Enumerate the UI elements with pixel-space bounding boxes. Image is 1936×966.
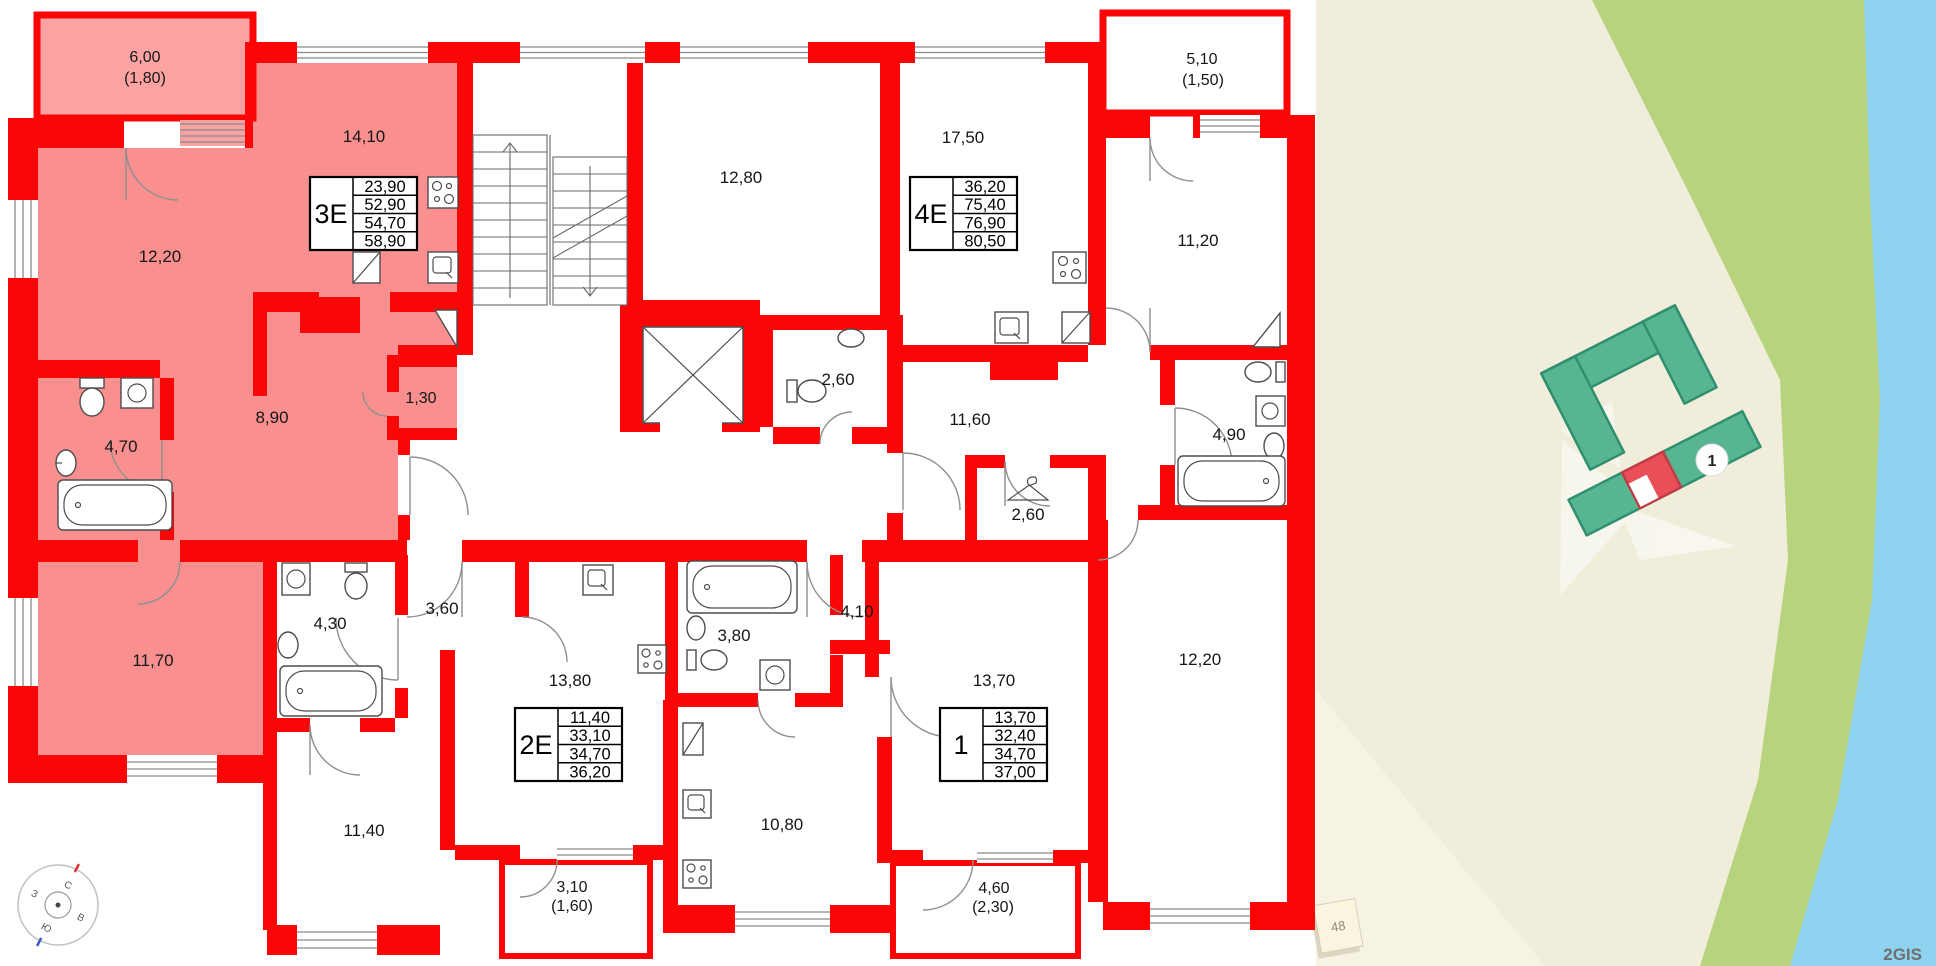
room-label: (2,30) bbox=[972, 899, 1014, 916]
room-label: 12,80 bbox=[720, 168, 763, 187]
apartment-table-2e: 2Е 11,40 33,10 34,70 36,20 bbox=[515, 708, 622, 782]
room-label: 3,60 bbox=[425, 599, 458, 618]
apartment-area: 33,10 bbox=[569, 727, 610, 745]
house-number-label: 48 bbox=[1330, 918, 1347, 935]
kitchen-sink-icon bbox=[428, 252, 458, 283]
kitchen-sink-icon bbox=[683, 790, 711, 818]
room-label: 14,10 bbox=[343, 127, 386, 146]
window bbox=[297, 42, 428, 63]
watermark-2gis: 2GIS bbox=[1883, 945, 1922, 964]
apartment-table-4e: 4Е 36,20 75,40 76,90 80,50 bbox=[910, 177, 1017, 251]
room-label: (1,80) bbox=[124, 70, 166, 87]
fridge-icon bbox=[1062, 312, 1090, 343]
apartment-type-label: 3Е bbox=[314, 199, 347, 229]
balcony-6-00 bbox=[37, 15, 253, 118]
floor-plan: 6,00 (1,80) 12,20 14,10 4,70 8,90 1,30 1… bbox=[1, 13, 1315, 964]
room-label: 4,70 bbox=[104, 437, 137, 456]
window bbox=[1150, 902, 1250, 930]
map-house-48: 48 bbox=[1309, 899, 1364, 959]
window bbox=[915, 42, 1045, 63]
apartment-area: 36,20 bbox=[569, 764, 610, 782]
stove-icon bbox=[683, 860, 711, 888]
compass: С В Ю З bbox=[1, 846, 114, 964]
washing-machine-icon bbox=[1256, 396, 1285, 426]
kitchen-sink-icon bbox=[995, 312, 1028, 343]
building-badge-label: 1 bbox=[1708, 453, 1717, 470]
window-sill bbox=[557, 845, 633, 860]
elevator bbox=[643, 327, 743, 434]
room-label: 4,90 bbox=[1212, 425, 1245, 444]
window bbox=[8, 200, 38, 278]
room-label: 11,60 bbox=[949, 410, 990, 429]
apartment-type-label: 1 bbox=[953, 730, 968, 760]
room-label: 11,40 bbox=[343, 821, 384, 840]
vent-shaft bbox=[683, 723, 703, 755]
room-label: 2,60 bbox=[821, 370, 854, 389]
apartment-table-3e: 3Е 23,90 52,90 54,70 58,90 bbox=[310, 177, 417, 251]
room-label: (1,60) bbox=[551, 898, 593, 915]
room-label: 8,90 bbox=[255, 408, 288, 427]
apartment-area: 58,90 bbox=[364, 233, 405, 251]
sink-icon bbox=[1264, 433, 1284, 459]
apartment-area: 36,20 bbox=[964, 178, 1005, 196]
apartment-area: 52,90 bbox=[364, 196, 405, 214]
bathtub-icon bbox=[1178, 456, 1285, 506]
sink-icon bbox=[838, 329, 864, 347]
apartment-area: 23,90 bbox=[364, 178, 405, 196]
room-label: 3,80 bbox=[717, 626, 750, 645]
toilet-icon bbox=[687, 650, 727, 670]
window bbox=[127, 755, 217, 783]
apartment-area: 32,40 bbox=[994, 727, 1035, 745]
room-label: 12,20 bbox=[1179, 650, 1222, 669]
apartment-type-label: 4Е bbox=[914, 199, 947, 229]
bathtub-icon bbox=[687, 561, 797, 613]
window bbox=[680, 42, 808, 63]
room-label: 12,20 bbox=[139, 247, 182, 266]
apartment-area: 76,90 bbox=[964, 215, 1005, 233]
room-label: 4,30 bbox=[313, 614, 346, 633]
room-label: 13,70 bbox=[973, 671, 1016, 690]
room-label: 4,60 bbox=[978, 880, 1009, 897]
window bbox=[297, 925, 377, 955]
apartment-area: 80,50 bbox=[964, 233, 1005, 251]
washing-machine-icon bbox=[282, 563, 310, 595]
room-label: 1,30 bbox=[405, 390, 436, 407]
screenshot-root: 1 48 2GIS bbox=[0, 0, 1936, 966]
elevator-door bbox=[660, 418, 722, 434]
room-label: 5,10 bbox=[1186, 51, 1217, 68]
bathtub-icon bbox=[58, 480, 172, 530]
washing-machine-icon bbox=[760, 660, 790, 690]
toilet-icon bbox=[787, 380, 826, 402]
balcony-steps bbox=[180, 120, 245, 146]
apartment-area: 13,70 bbox=[994, 709, 1035, 727]
staircase bbox=[473, 135, 627, 305]
room-label: 2,60 bbox=[1011, 505, 1044, 524]
apartment-area: 34,70 bbox=[994, 746, 1035, 764]
bathtub-icon bbox=[280, 666, 382, 716]
vent-shaft bbox=[353, 252, 380, 283]
window-sill bbox=[977, 850, 1053, 863]
stove-icon bbox=[638, 645, 666, 673]
apartment-table-1: 1 13,70 32,40 34,70 37,00 bbox=[940, 708, 1047, 782]
room-label: 6,00 bbox=[129, 49, 160, 66]
building-badge[interactable]: 1 bbox=[1696, 444, 1728, 476]
apartment-area: 54,70 bbox=[364, 215, 405, 233]
stove-icon bbox=[1053, 252, 1086, 283]
apartment-area: 34,70 bbox=[569, 746, 610, 764]
kitchen-sink-icon bbox=[583, 565, 613, 595]
window bbox=[520, 42, 645, 63]
apartment-area: 11,40 bbox=[570, 709, 610, 727]
window bbox=[1200, 115, 1260, 138]
room-label: 11,20 bbox=[1177, 231, 1218, 250]
apartment-type-label: 2Е bbox=[519, 730, 552, 760]
room-label: 13,80 bbox=[549, 671, 592, 690]
room-label: 4,10 bbox=[840, 602, 873, 621]
toilet-icon bbox=[1245, 362, 1285, 382]
scene: 1 48 2GIS bbox=[0, 0, 1936, 966]
stove-icon bbox=[428, 177, 458, 208]
room-label: 11,70 bbox=[132, 651, 173, 670]
washing-machine-icon bbox=[121, 378, 153, 408]
sink-icon bbox=[278, 632, 298, 658]
map: 1 48 2GIS bbox=[1309, 0, 1936, 966]
room-label: 17,50 bbox=[942, 128, 985, 147]
room-label: 3,10 bbox=[556, 879, 587, 896]
room-label: 10,80 bbox=[761, 815, 804, 834]
sink-icon bbox=[56, 450, 76, 476]
toilet-icon bbox=[345, 563, 367, 599]
room-label: (1,50) bbox=[1182, 72, 1224, 89]
apartment-area: 37,00 bbox=[994, 764, 1035, 782]
apartment-area: 75,40 bbox=[964, 196, 1005, 214]
sink-icon bbox=[687, 616, 705, 640]
toilet-icon bbox=[80, 378, 104, 416]
window bbox=[735, 905, 830, 933]
window bbox=[8, 598, 38, 686]
corner-shelf bbox=[1253, 313, 1280, 347]
